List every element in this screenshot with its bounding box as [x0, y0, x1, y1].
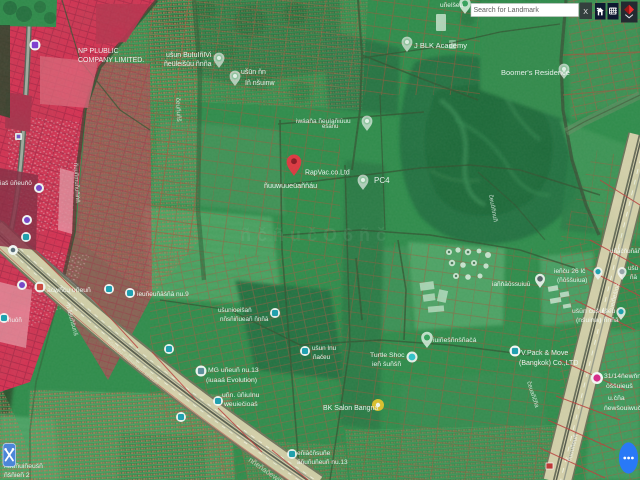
svg-text:X: X [583, 7, 588, 16]
svg-text:Search for Landmark: Search for Landmark [474, 7, 540, 14]
